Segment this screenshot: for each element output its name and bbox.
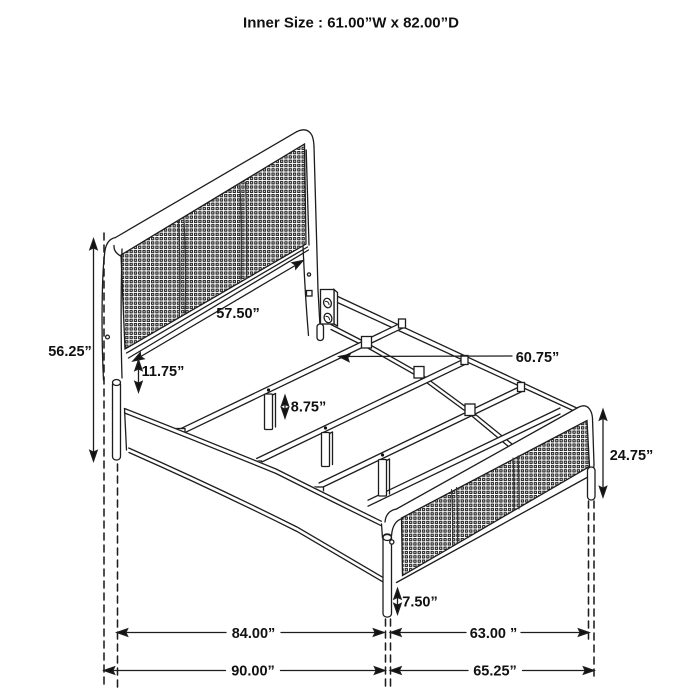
svg-text:24.75”: 24.75” [610, 448, 654, 464]
svg-text:65.25”: 65.25” [473, 664, 517, 680]
svg-text:Inner Size : 61.00”W x 82.00”D: Inner Size : 61.00”W x 82.00”D [243, 15, 459, 32]
svg-text:84.00”: 84.00” [232, 626, 276, 642]
svg-text:11.75”: 11.75” [142, 364, 185, 380]
svg-text:8.75”: 8.75” [291, 400, 326, 416]
svg-text:63.00 ”: 63.00 ” [470, 626, 518, 642]
svg-text:60.75”: 60.75” [516, 350, 560, 366]
svg-text:90.00”: 90.00” [231, 664, 275, 680]
svg-text:56.25”: 56.25” [48, 344, 92, 360]
svg-text:57.50”: 57.50” [216, 306, 260, 322]
svg-text:7.50”: 7.50” [402, 595, 437, 611]
